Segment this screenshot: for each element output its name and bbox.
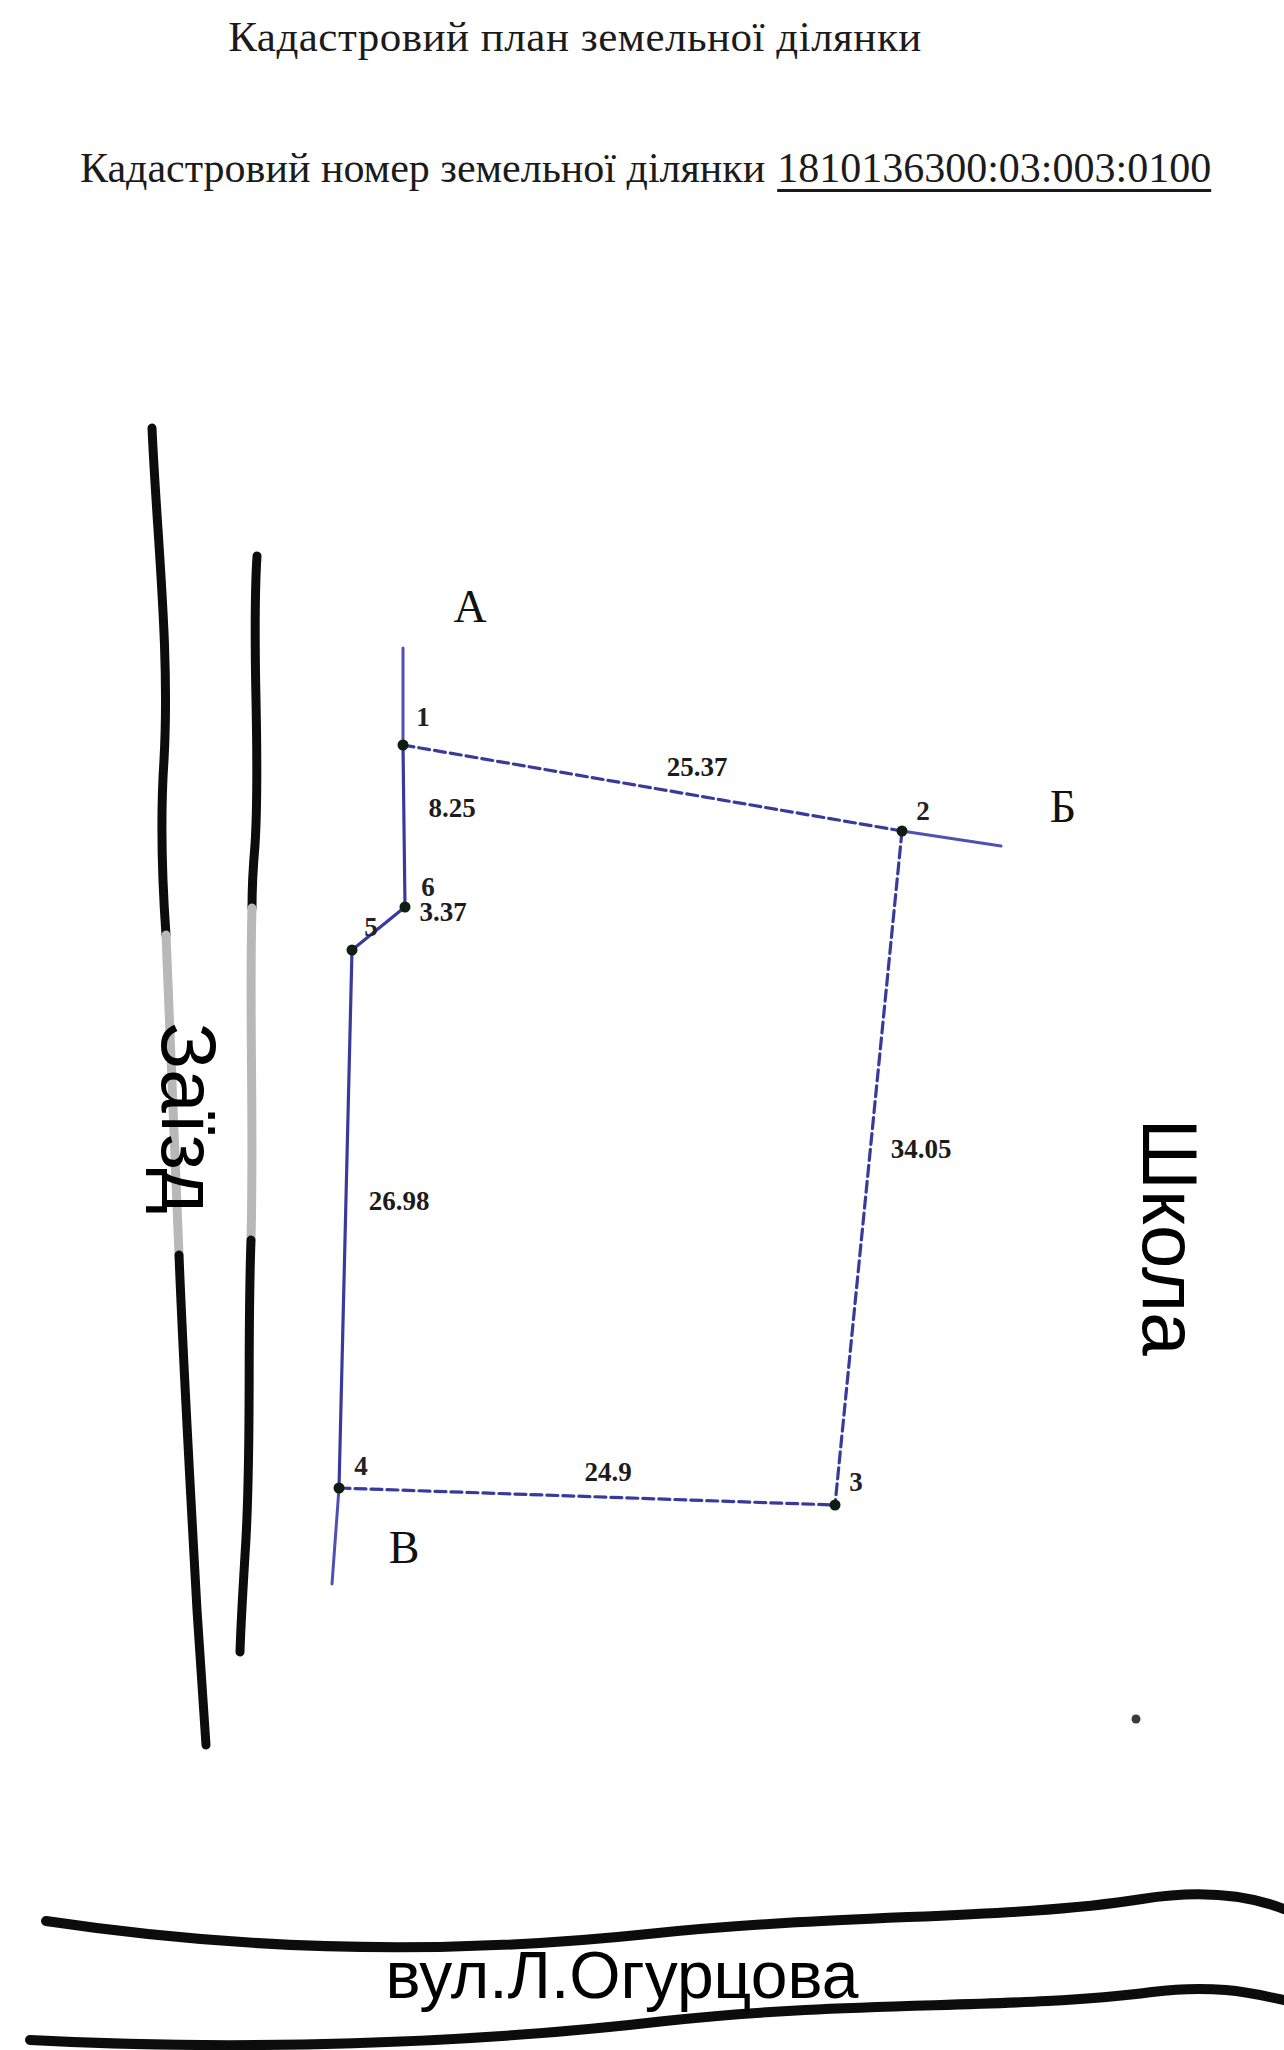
vertex-dot-2 [897, 826, 908, 837]
edge-length-label-2-3: 34.05 [891, 1134, 952, 1164]
edge-length-label-1-2: 25.37 [667, 752, 728, 782]
vertex-number-1: 1 [416, 702, 430, 732]
left-road-inner-line-top [252, 556, 257, 908]
left-road-inner-line-bottom [240, 1240, 251, 1652]
boundary-extension-line-3 [332, 1488, 339, 1584]
parcel-edge-4-3 [339, 1488, 835, 1505]
vertex-number-3: 3 [849, 1467, 863, 1497]
vertex-dot-3 [830, 1500, 841, 1511]
parcel-edge-2-3 [835, 831, 902, 1505]
left-road-outer-line-top [152, 428, 166, 935]
parcel-edge-1-6 [403, 745, 405, 907]
vertex-dot-6 [400, 902, 411, 913]
direction-letter-Б: Б [1050, 781, 1076, 832]
edge-length-label-1-6: 8.25 [428, 793, 475, 823]
vertex-number-4: 4 [354, 1451, 368, 1481]
boundary-extension-line-2 [902, 831, 1001, 846]
vertex-number-6: 6 [421, 872, 435, 902]
parcel-edge-1-2 [403, 745, 902, 831]
vertex-number-5: 5 [364, 912, 378, 942]
street-name: вул.Л.Огурцова [386, 1938, 859, 2012]
left-road-outer-line-bottom [179, 1255, 206, 1745]
vertex-dot-4 [334, 1483, 345, 1494]
edge-length-label-4-3: 24.9 [584, 1457, 631, 1487]
left-road-inner-line-faded [251, 908, 252, 1240]
parcel-layer: 25.3734.0524.926.983.378.25123456АБВ [332, 581, 1076, 1584]
vertex-dot-1 [398, 740, 409, 751]
direction-letter-А: А [453, 581, 486, 632]
cadastral-plan-svg: 25.3734.0524.926.983.378.25123456АБВ Заї… [0, 0, 1284, 2050]
parcel-edge-5-4 [339, 950, 352, 1488]
vertex-number-2: 2 [916, 796, 930, 826]
direction-letter-В: В [389, 1522, 420, 1573]
scan-speck-dot [1132, 1715, 1141, 1724]
edge-length-label-5-4: 26.98 [369, 1186, 430, 1216]
right-neighbour-name: Школа [1126, 1118, 1214, 1356]
parcel-edge-6-5 [352, 907, 405, 950]
left-road-name: Заїзд [145, 1022, 233, 1214]
vertex-dot-5 [347, 945, 358, 956]
